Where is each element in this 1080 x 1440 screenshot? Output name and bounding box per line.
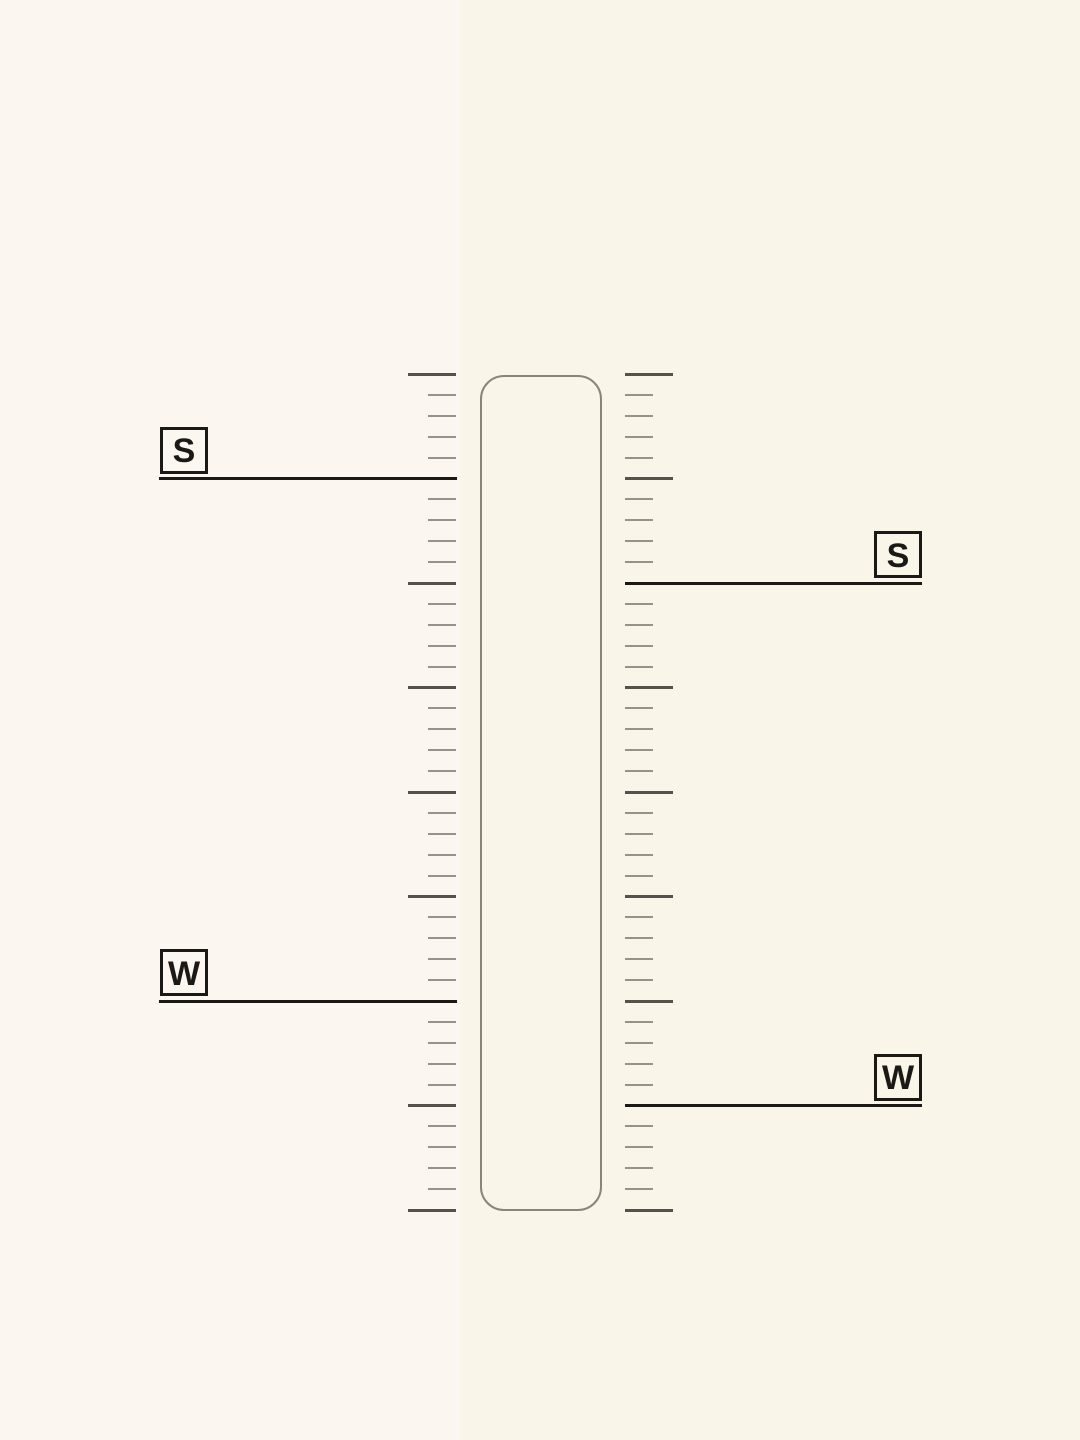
pointer-right-w-line	[625, 1104, 922, 1107]
pointer-right-s-label[interactable]: S	[874, 531, 922, 578]
pointer-left-w-label[interactable]: W	[160, 949, 208, 996]
diagram-canvas: SSWW	[0, 0, 1080, 1440]
pointer-right-w-label[interactable]: W	[874, 1054, 922, 1101]
pointer-left-s-line	[159, 477, 457, 480]
pointer-left-s-label[interactable]: S	[160, 427, 208, 474]
pointers-layer: SSWW	[0, 0, 1080, 1440]
pointer-left-w-line	[159, 1000, 457, 1003]
pointer-right-s-line	[625, 582, 922, 585]
